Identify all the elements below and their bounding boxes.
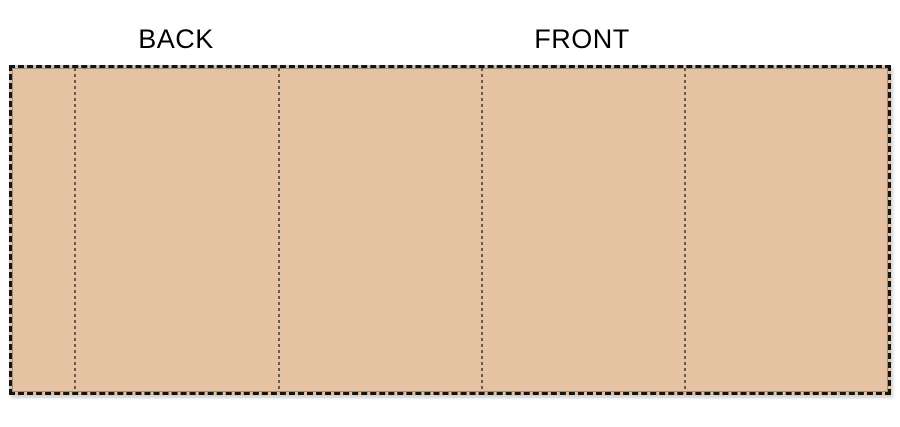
- fold-line: [684, 68, 686, 392]
- wrap-rectangle: [9, 65, 891, 395]
- fold-line: [278, 68, 280, 392]
- front-label: FRONT: [534, 23, 629, 55]
- fold-line: [481, 68, 483, 392]
- fold-line: [74, 68, 76, 392]
- back-label: BACK: [138, 23, 214, 55]
- label-wrap-diagram: BACK FRONT: [0, 0, 900, 427]
